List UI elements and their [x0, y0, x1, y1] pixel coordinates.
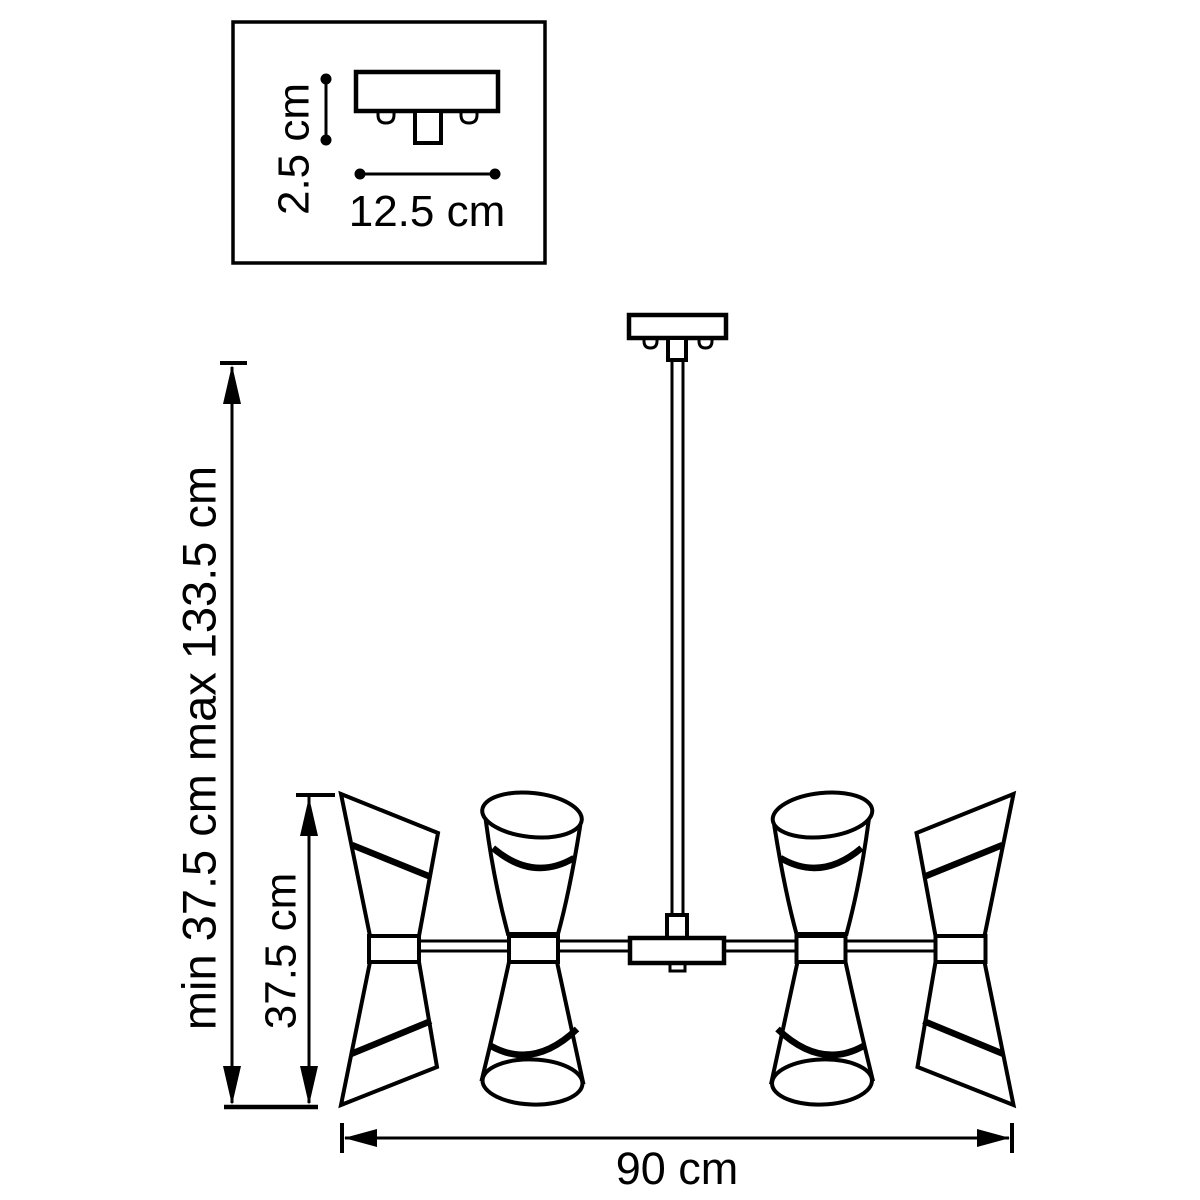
cone-shade-collar	[509, 936, 558, 962]
shade-left-top-cone	[341, 794, 438, 936]
inset-canopy-stem	[415, 111, 441, 143]
overall-height-dim-label: min 37.5 cm max 133.5 cm	[172, 466, 225, 1030]
shade-left-bottom-cone	[341, 962, 437, 1105]
inset-height-dim-dot-bottom	[321, 135, 332, 146]
shade-height-dimension: 37.5 cm	[257, 795, 335, 1105]
shade-height-arrow-down	[300, 1066, 318, 1105]
chandelier-drawing	[341, 315, 1014, 1106]
arm-segment-4	[842, 941, 940, 951]
shade-height-arrow-up	[300, 797, 318, 836]
canopy-plate	[629, 315, 726, 338]
width-dimension: 90 cm	[342, 1123, 1012, 1194]
arm-segment-1	[415, 941, 512, 951]
width-arrow-right	[977, 1129, 1010, 1147]
inset-width-dim-dot-right	[490, 169, 501, 180]
diagram-canvas: 2.5 cm 12.5 cm	[0, 0, 1200, 1200]
arm-segment-3	[721, 941, 799, 951]
inset-height-dim-dot-top	[321, 74, 332, 85]
shade-cone-left	[480, 788, 584, 1106]
central-hub	[630, 915, 724, 971]
width-dim-label: 90 cm	[616, 1143, 739, 1194]
ceiling-mount-detail-inset: 2.5 cm 12.5 cm	[233, 22, 545, 263]
overall-height-arrow-down	[223, 1066, 241, 1105]
inset-width-dim-label: 12.5 cm	[349, 187, 506, 236]
cone-shade-bottom-rim	[482, 1058, 584, 1106]
shade-cone-right	[770, 788, 874, 1106]
overall-height-dimension: min 37.5 cm max 133.5 cm	[172, 363, 247, 1105]
hanging-rod	[672, 360, 683, 915]
chandelier-dimension-diagram: 2.5 cm 12.5 cm	[0, 0, 1200, 1200]
shade-height-dim-label: 37.5 cm	[257, 873, 306, 1030]
arm-segment-2	[554, 941, 633, 951]
inset-width-dim-dot-left	[355, 169, 366, 180]
inset-canopy-plate	[356, 72, 498, 111]
shade-left-collar	[369, 936, 419, 962]
hub-body	[630, 938, 724, 963]
width-arrow-left	[344, 1129, 377, 1147]
hub-top-collar	[667, 915, 687, 938]
hub-bottom-finial	[670, 963, 685, 971]
inset-height-dim-label: 2.5 cm	[270, 83, 319, 215]
fixture-canopy	[629, 315, 726, 360]
canopy-collar	[668, 338, 686, 360]
overall-height-arrow-up	[223, 365, 241, 404]
